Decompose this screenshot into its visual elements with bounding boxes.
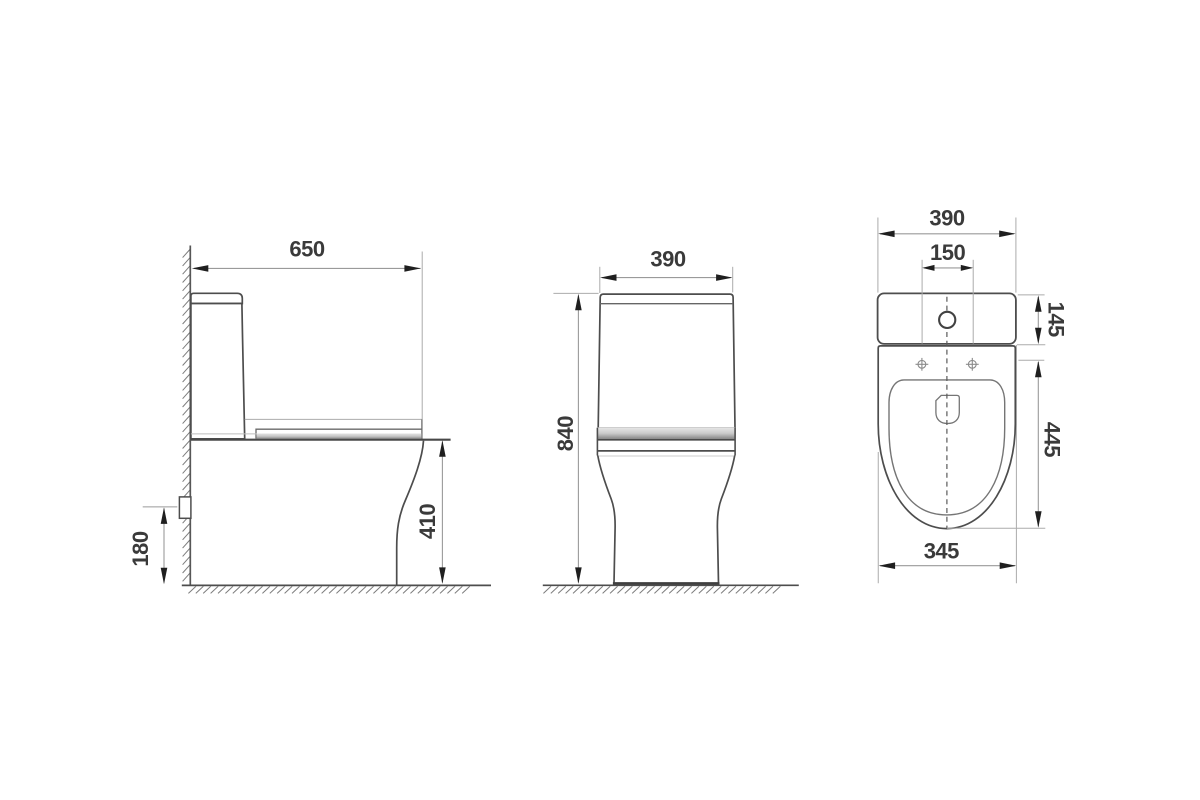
svg-text:650: 650 bbox=[289, 237, 324, 262]
svg-text:150: 150 bbox=[930, 240, 965, 265]
svg-text:390: 390 bbox=[929, 205, 964, 230]
svg-text:180: 180 bbox=[128, 531, 153, 566]
svg-text:345: 345 bbox=[924, 539, 959, 564]
svg-text:145: 145 bbox=[1044, 302, 1069, 337]
svg-text:840: 840 bbox=[553, 416, 578, 451]
svg-text:445: 445 bbox=[1040, 422, 1065, 457]
svg-text:390: 390 bbox=[650, 247, 685, 272]
svg-text:410: 410 bbox=[415, 504, 440, 539]
